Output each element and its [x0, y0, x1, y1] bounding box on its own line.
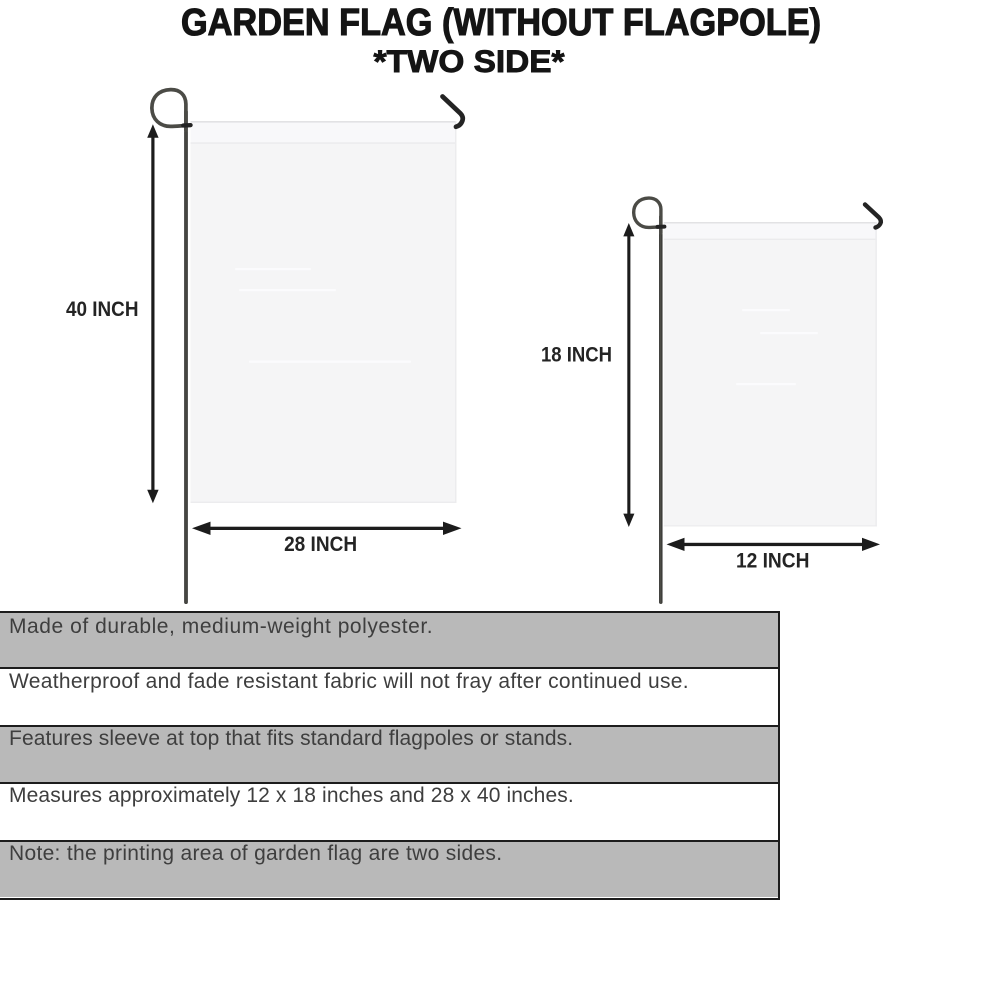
svg-text:40 INCH: 40 INCH	[66, 297, 139, 321]
svg-text:GARDEN FLAG (WITHOUT FLAGPOLE): GARDEN FLAG (WITHOUT FLAGPOLE)	[181, 1, 821, 43]
svg-text:12 INCH: 12 INCH	[736, 548, 810, 572]
svg-text:*TWO SIDE*: *TWO SIDE*	[374, 44, 566, 79]
svg-text:18 INCH: 18 INCH	[541, 342, 612, 366]
svg-text:28 INCH: 28 INCH	[284, 532, 357, 556]
